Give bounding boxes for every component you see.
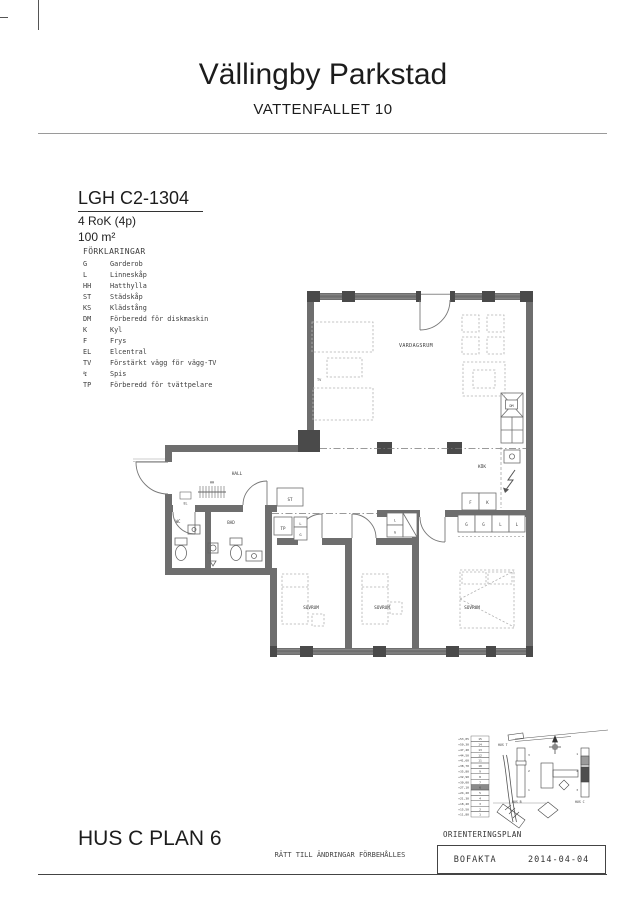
sanitary-fixtures	[175, 525, 262, 566]
levels-table: +53,0515+50,3014+47,4013+44,5012+41,6011…	[458, 736, 489, 817]
level-floor: 11	[478, 759, 482, 763]
level-elevation: +30,00	[458, 780, 469, 784]
level-floor: 12	[478, 753, 482, 757]
level-floor: 3	[479, 802, 481, 806]
disclaimer: RÄTT TILL ÄNDRINGAR FÖRBEHÅLLES	[250, 851, 430, 859]
level-floor: 2	[479, 807, 481, 811]
room-label-bath: BAD	[227, 520, 235, 525]
room-label-bedroom3: SOVRUM	[464, 605, 480, 611]
room-label-livingroom: VARDAGSRUM	[399, 343, 433, 349]
closet-label-l: L	[299, 522, 301, 526]
hus-b-building	[516, 748, 526, 797]
title-block: BOFAKTA 2014-04-04	[437, 845, 606, 874]
level-elevation: +18,40	[458, 802, 469, 806]
level-elevation: +21,30	[458, 797, 469, 801]
level-floor: 1	[479, 813, 481, 817]
level-floor: 7	[479, 780, 481, 784]
header-rule	[38, 133, 607, 134]
level-floor: 8	[479, 775, 481, 779]
hus-c-floor: 3	[576, 788, 578, 792]
apartment-rooms: 4 RoK (4p)	[78, 214, 136, 228]
hus-t-building	[508, 733, 524, 741]
hus-b-floor: 1	[528, 788, 530, 792]
drawing-sheet: Vällingby Parkstad VATTENFALLET 10 LGH C…	[0, 0, 636, 900]
hus-t-label: HUS T	[498, 743, 508, 747]
level-floor: 15	[478, 737, 482, 741]
floor-title: HUS C PLAN 6	[78, 827, 222, 851]
apartment-id: LGH C2-1304	[78, 188, 203, 212]
electrical-label: EL	[183, 502, 187, 506]
closet-label-tp: TP	[280, 526, 286, 531]
walls	[165, 293, 533, 655]
bath-door	[243, 481, 267, 505]
hus-c-floor: 1	[576, 752, 578, 756]
north-icon	[549, 736, 561, 754]
entry-landing	[133, 459, 165, 462]
legend-heading: FÖRKLARINGAR	[83, 247, 283, 256]
furniture	[282, 315, 514, 628]
dishwasher-label: DM	[509, 404, 513, 408]
level-floor: 9	[479, 770, 481, 774]
level-elevation: +27,10	[458, 786, 469, 790]
orientation-heading: ORIENTERINGSPLAN	[443, 830, 522, 839]
sink-icon	[246, 551, 262, 561]
room-label-kitchen: KÖK	[478, 463, 486, 470]
hus-c-building	[581, 748, 589, 797]
floor-plan: ST TP L G L G F K G G L L DM	[130, 280, 560, 670]
level-floor: 5	[479, 791, 481, 795]
bedroom2-door	[352, 514, 376, 538]
sink-icon	[188, 525, 200, 534]
level-floor: 13	[478, 748, 482, 752]
entry-door	[136, 462, 168, 494]
legend-item: GGarderob	[83, 260, 283, 271]
level-elevation: +24,20	[458, 791, 469, 795]
room-label-bedroom2: SOVRUM	[374, 605, 390, 611]
room-label-hall: HALL	[232, 471, 243, 477]
level-floor: 14	[478, 743, 482, 747]
level-elevation: +50,30	[458, 743, 469, 747]
orientation-plan: +53,0515+50,3014+47,4013+44,5012+41,6011…	[443, 722, 610, 845]
page-title: Vällingby Parkstad	[38, 58, 608, 92]
toilet-icon	[175, 538, 187, 561]
closet-label-st: ST	[287, 497, 293, 502]
level-elevation: +38,70	[458, 764, 469, 768]
level-elevation: +53,05	[458, 737, 469, 741]
hus-b-label: HUS B	[512, 800, 522, 804]
level-floor: 6	[479, 786, 481, 790]
level-elevation: +41,60	[458, 759, 469, 763]
date-label: 2014-04-04	[528, 855, 589, 865]
balcony-door	[420, 300, 450, 330]
toilet-icon	[230, 538, 242, 561]
tv-wall-label: TV	[317, 378, 322, 382]
apartment-area: 100 m²	[78, 230, 115, 244]
hus-b-floor: 2	[528, 769, 530, 773]
level-floor: 10	[478, 764, 482, 768]
frame-mark-vertical	[38, 0, 39, 30]
level-elevation: +11,80	[458, 813, 469, 817]
closet-label-l: L	[394, 519, 396, 523]
page-subtitle: VATTENFALLET 10	[38, 101, 608, 118]
level-elevation: +47,40	[458, 748, 469, 752]
closet-label-g: G	[394, 531, 396, 535]
level-elevation: +44,50	[458, 753, 469, 757]
level-elevation: +15,50	[458, 807, 469, 811]
stove-icon: ↯	[83, 370, 110, 381]
electrical-box	[180, 492, 191, 499]
level-floor: 4	[479, 797, 481, 801]
room-label-wc: WC	[176, 519, 181, 524]
bedroom3-door	[420, 517, 445, 542]
hus-c-label: HUS C	[575, 800, 585, 804]
frame-mark-tick	[0, 17, 8, 18]
hus-b-floor: 3	[528, 753, 530, 757]
level-elevation: +32,90	[458, 775, 469, 779]
closet-label-g: G	[299, 533, 301, 537]
footer-rule	[38, 874, 607, 875]
room-label-bedroom1: SOVRUM	[303, 605, 319, 611]
hat-shelf-label: HH	[210, 481, 214, 485]
level-elevation: +35,80	[458, 770, 469, 774]
coat-rack-icon	[198, 486, 226, 498]
stove-icon	[503, 470, 515, 493]
brand-label: BOFAKTA	[454, 855, 497, 865]
